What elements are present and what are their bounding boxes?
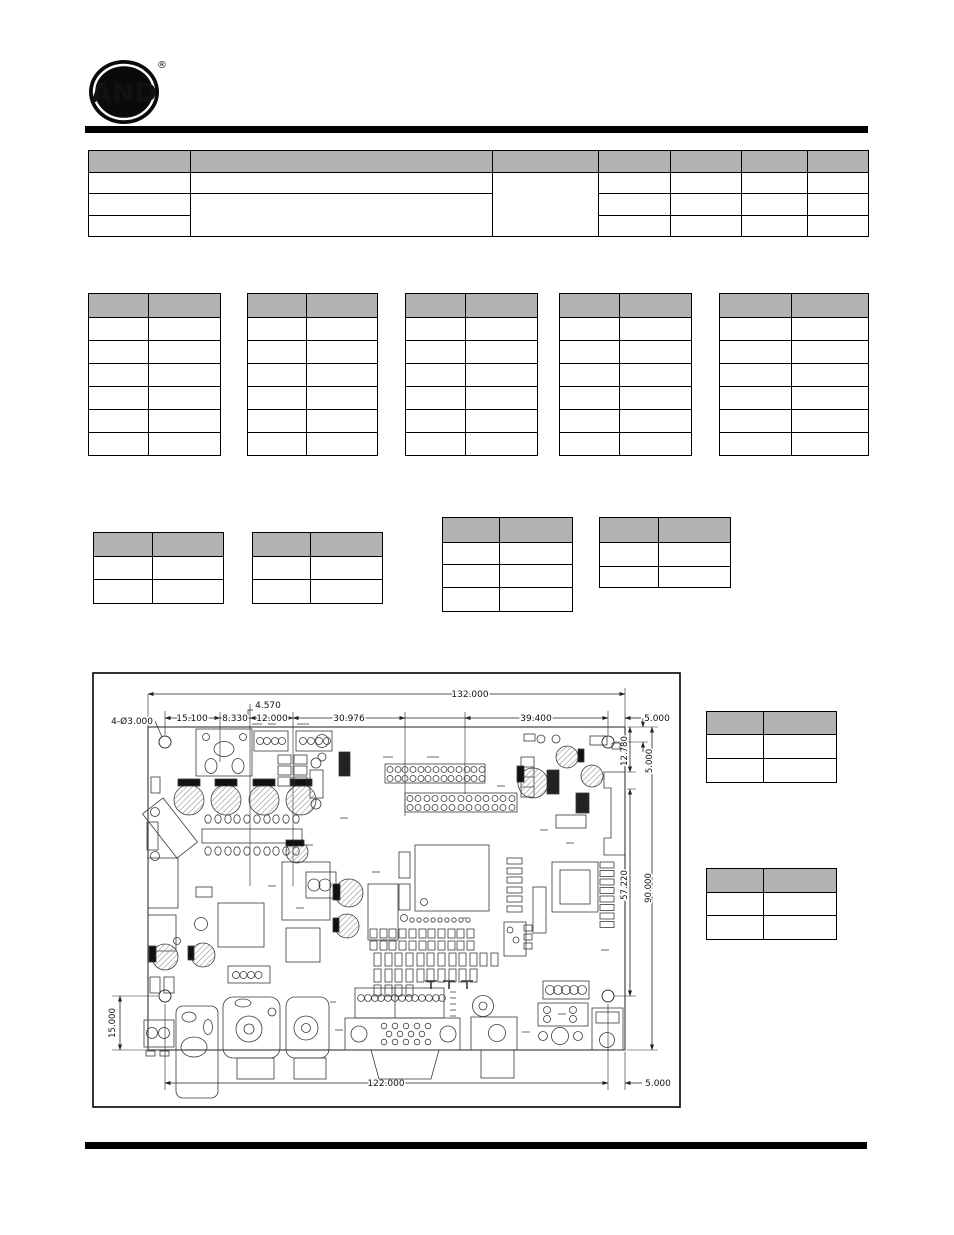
- table-cell: [149, 387, 221, 410]
- table-cell: [89, 341, 149, 364]
- dim-edge-5-000-top: 5.000: [644, 714, 670, 724]
- side-table-1: [706, 711, 837, 783]
- registered-mark: ®: [157, 60, 167, 71]
- pcb-dimension-figure: 132.000 15.100 8.330 12.000 30.976 39.40…: [92, 672, 681, 1108]
- dim-overall-width: 132.000: [451, 690, 488, 700]
- dim-seg-15-100: 15.100: [176, 714, 208, 724]
- table-cell: [707, 916, 764, 940]
- small-table-b: [252, 532, 383, 604]
- table-cell: [720, 387, 792, 410]
- table-cell: [720, 318, 792, 341]
- table-cell: [620, 387, 692, 410]
- side-table-2: [706, 868, 837, 940]
- table-header-cell: [153, 533, 224, 557]
- table-cell: [764, 893, 837, 916]
- table-cell: [620, 410, 692, 433]
- table-header-cell: [493, 151, 599, 173]
- table-header-cell: [764, 869, 837, 893]
- table-cell: [89, 410, 149, 433]
- table-cell: [600, 543, 659, 567]
- table-cell: [149, 318, 221, 341]
- table-cell: [406, 364, 466, 387]
- pin-table-1: [88, 293, 221, 456]
- dim-v-5-000: 5.000: [645, 749, 655, 773]
- pin-table-2: [247, 293, 378, 456]
- table-cell: [620, 433, 692, 456]
- table-cell: [191, 173, 493, 194]
- table-cell: [89, 364, 149, 387]
- table-cell: [406, 433, 466, 456]
- table-cell: [89, 194, 191, 216]
- table-cell: [253, 557, 311, 580]
- table-cell: [311, 557, 383, 580]
- table-cell: [89, 173, 191, 194]
- table-cell: [599, 173, 671, 194]
- table-cell: [149, 341, 221, 364]
- dim-seg-39-400: 39.400: [520, 714, 552, 724]
- table-header-cell: [720, 294, 792, 318]
- table-header-cell: [311, 533, 383, 557]
- table-cell: [764, 735, 837, 759]
- table-cell: [792, 318, 869, 341]
- table-header-cell: [764, 712, 837, 735]
- table-header-cell: [94, 533, 153, 557]
- table-header-cell: [406, 294, 466, 318]
- table-header-cell: [500, 518, 573, 543]
- table-cell: [599, 194, 671, 216]
- table-cell: [149, 433, 221, 456]
- table-cell: [89, 387, 149, 410]
- table-header-cell: [307, 294, 378, 318]
- table-cell: [89, 433, 149, 456]
- dim-v-90-000: 90.000: [644, 873, 654, 903]
- table-header-cell: [792, 294, 869, 318]
- table-cell: [707, 735, 764, 759]
- table-cell: [808, 173, 869, 194]
- table-cell: [792, 387, 869, 410]
- table-cell: [443, 565, 500, 588]
- table-cell: [94, 557, 153, 580]
- dim-v-12-780: 12.780: [620, 736, 630, 766]
- table-header-cell: [808, 151, 869, 173]
- table-cell: [764, 759, 837, 783]
- table-cell: [466, 410, 538, 433]
- table-cell: [742, 173, 808, 194]
- table-header-cell: [707, 869, 764, 893]
- table-cell: [89, 318, 149, 341]
- table-cell: [149, 364, 221, 387]
- table-cell: [620, 318, 692, 341]
- table-cell: [443, 543, 500, 565]
- table-cell: [500, 543, 573, 565]
- dim-bottom-122-000: 122.000: [367, 1079, 404, 1089]
- table-cell: [248, 410, 307, 433]
- table-header-cell: [659, 518, 731, 543]
- table-header-cell: [466, 294, 538, 318]
- table-cell: [191, 194, 493, 237]
- table-cell: [560, 318, 620, 341]
- table-cell: [720, 364, 792, 387]
- table-cell: [659, 543, 731, 567]
- table-cell: [560, 341, 620, 364]
- table-header-cell: [671, 151, 742, 173]
- table-cell: [500, 565, 573, 588]
- table-cell: [466, 433, 538, 456]
- dim-v-57-220: 57.220: [620, 870, 630, 900]
- table-cell: [808, 194, 869, 216]
- table-cell: [620, 364, 692, 387]
- table-cell: [742, 216, 808, 237]
- table-cell: [248, 387, 307, 410]
- table-cell: [153, 580, 224, 604]
- table-cell: [406, 318, 466, 341]
- table-cell: [707, 893, 764, 916]
- footer-rule: [85, 1142, 867, 1149]
- table-cell: [307, 318, 378, 341]
- small-table-a: [93, 532, 224, 604]
- table-cell: [707, 759, 764, 783]
- table-header-cell: [600, 518, 659, 543]
- brand-logo: AND ®: [86, 56, 170, 126]
- table-cell: [406, 341, 466, 364]
- table-cell: [792, 341, 869, 364]
- table-header-cell: [149, 294, 221, 318]
- table-cell: [599, 216, 671, 237]
- table-cell: [311, 580, 383, 604]
- logo-text: AND: [91, 78, 157, 109]
- dim-seg-30-976: 30.976: [333, 714, 365, 724]
- table-cell: [466, 318, 538, 341]
- table-cell: [764, 916, 837, 940]
- table-cell: [493, 173, 599, 237]
- table-header-cell: [89, 151, 191, 173]
- table-cell: [792, 433, 869, 456]
- pin-table-5: [719, 293, 869, 456]
- table-cell: [720, 341, 792, 364]
- dim-seg-12-000: 12.000: [256, 714, 288, 724]
- table-cell: [659, 567, 731, 588]
- dim-left-15-000: 15.000: [108, 1008, 118, 1038]
- table-cell: [671, 173, 742, 194]
- table-cell: [671, 216, 742, 237]
- header-rule: [85, 126, 868, 133]
- table-header-cell: [191, 151, 493, 173]
- table-cell: [307, 433, 378, 456]
- table-cell: [560, 433, 620, 456]
- table-cell: [406, 410, 466, 433]
- dim-hole-callout: 4-Ø3.000: [111, 716, 153, 727]
- table-header-cell: [599, 151, 671, 173]
- table-cell: [248, 364, 307, 387]
- table-header-cell: [248, 294, 307, 318]
- table-cell: [307, 410, 378, 433]
- table-cell: [720, 410, 792, 433]
- table-header-cell: [742, 151, 808, 173]
- document-page: AND ®: [0, 0, 954, 1235]
- table-cell: [443, 588, 500, 612]
- table-cell: [600, 567, 659, 588]
- table-cell: [253, 580, 311, 604]
- table-header-cell: [253, 533, 311, 557]
- table-header-cell: [620, 294, 692, 318]
- table-cell: [466, 364, 538, 387]
- dim-offset-4-570: 4.570: [255, 701, 281, 711]
- table-cell: [307, 341, 378, 364]
- table-cell: [406, 387, 466, 410]
- top-summary-table: [88, 150, 869, 237]
- table-header-cell: [707, 712, 764, 735]
- dim-seg-8-330: 8.330: [222, 714, 248, 724]
- table-cell: [89, 216, 191, 237]
- pin-table-4: [559, 293, 692, 456]
- pin-table-3: [405, 293, 538, 456]
- table-cell: [149, 410, 221, 433]
- table-cell: [620, 341, 692, 364]
- table-cell: [307, 387, 378, 410]
- table-cell: [720, 433, 792, 456]
- small-table-c: [442, 517, 573, 612]
- table-cell: [248, 341, 307, 364]
- table-cell: [671, 194, 742, 216]
- table-cell: [808, 216, 869, 237]
- table-cell: [153, 557, 224, 580]
- table-cell: [307, 364, 378, 387]
- table-cell: [466, 341, 538, 364]
- dim-bottom-5-000: 5.000: [645, 1079, 671, 1089]
- table-cell: [248, 433, 307, 456]
- table-cell: [792, 410, 869, 433]
- table-cell: [466, 387, 538, 410]
- table-cell: [792, 364, 869, 387]
- table-header-cell: [443, 518, 500, 543]
- table-header-cell: [560, 294, 620, 318]
- small-table-d: [599, 517, 731, 588]
- table-header-cell: [89, 294, 149, 318]
- table-cell: [560, 410, 620, 433]
- table-cell: [500, 588, 573, 612]
- table-cell: [248, 318, 307, 341]
- table-cell: [94, 580, 153, 604]
- table-cell: [560, 387, 620, 410]
- table-cell: [560, 364, 620, 387]
- table-cell: [742, 194, 808, 216]
